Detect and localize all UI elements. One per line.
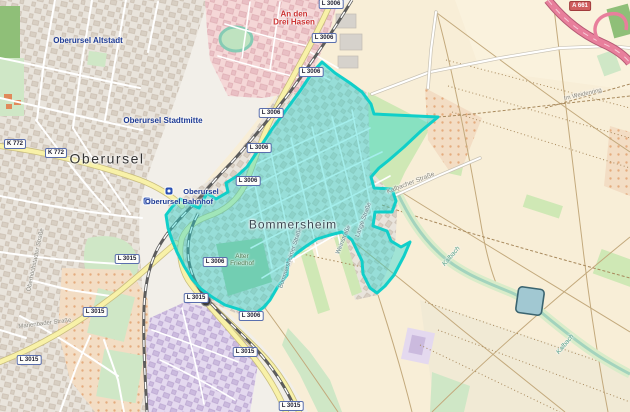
road-shield-l3006-5: L 3006 xyxy=(247,143,272,153)
road-shield-l3006-2: L 3006 xyxy=(312,33,337,43)
road-shield-k772-2: K 772 xyxy=(45,148,67,158)
road-shield-l3006-3: L 3006 xyxy=(299,67,324,77)
road-shield-l3006-6: L 3006 xyxy=(236,176,261,186)
road-shield-l3015-2: L 3015 xyxy=(83,307,108,317)
place-label-station: Oberursel xyxy=(183,188,218,196)
area-label-alter-friedhof: AlterFriedhof xyxy=(230,254,254,268)
train-station-icon xyxy=(166,188,173,195)
place-label-oberursel-altstadt: Oberursel Altstadt xyxy=(53,37,123,45)
road-shield-l3006-1: L 3006 xyxy=(319,0,344,9)
road-shield-l3006-4: L 3006 xyxy=(259,108,284,118)
road-shield-l3006-7: L 3006 xyxy=(203,257,228,267)
road-shield-l3015-4: L 3015 xyxy=(184,293,209,303)
road-shield-l3015-1: L 3015 xyxy=(17,355,42,365)
friedhof-line2: Friedhof xyxy=(230,260,254,267)
place-label-bahnhof: Oberursel Bahnhof xyxy=(145,198,213,206)
pond xyxy=(515,286,544,315)
drei-hasen-line2: Drei Hasen xyxy=(273,18,315,27)
place-label-bommersheim: Bommersheim xyxy=(249,219,337,232)
road-shield-l3006-8: L 3006 xyxy=(239,311,264,321)
place-label-oberursel: Oberursel xyxy=(70,152,145,167)
road-shield-l3015-6: L 3015 xyxy=(279,401,304,411)
road-shield-a661: A 661 xyxy=(569,1,591,11)
road-shield-k772-1: K 772 xyxy=(4,139,26,149)
map-layers xyxy=(0,0,630,412)
map-canvas[interactable]: L 3006 L 3006 L 3006 L 3006 L 3006 L 300… xyxy=(0,0,630,412)
road-shield-l3015-5: L 3015 xyxy=(233,347,258,357)
place-label-drei-hasen: An denDrei Hasen xyxy=(273,11,315,28)
road-shield-l3015-3: L 3015 xyxy=(115,254,140,264)
place-label-oberursel-stadtmitte: Oberursel Stadtmitte xyxy=(123,117,202,125)
